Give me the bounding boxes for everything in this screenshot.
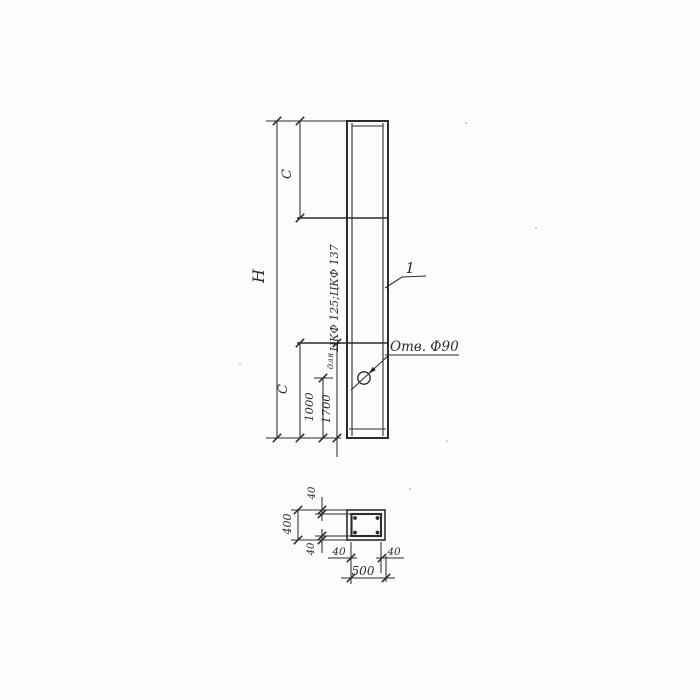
dim-label-1700: 1700 [319, 394, 333, 423]
joint-lines [297, 218, 388, 343]
post-outline [347, 121, 388, 438]
rebar-dot [353, 531, 357, 535]
hole-callout: Отв. Ф90 [351, 339, 459, 390]
note-series: ЦКФ 125;ЦКФ 137 [328, 244, 341, 351]
section-bottom-dimensions: 40 40 500 [328, 542, 404, 584]
dim-label-H: H [249, 268, 268, 284]
dim-label-cover-top: 40 [307, 486, 318, 500]
dim-label-C-bottom: C [276, 384, 291, 394]
dim-label-500: 500 [352, 564, 375, 578]
note-prefix: для [326, 352, 336, 369]
rebar-dot [376, 516, 380, 520]
elevation-view: H C C 1000 1700 для ЦКФ 125;ЦКФ 137 Отв.… [249, 117, 459, 457]
rebar-dot [376, 531, 380, 535]
dim-label-cover-bottom: 40 [306, 542, 317, 556]
rebar-dot [353, 516, 357, 520]
section-outline [347, 510, 385, 540]
drawing-sheet: H C C 1000 1700 для ЦКФ 125;ЦКФ 137 Отв.… [0, 0, 700, 700]
item-mark: 1 [385, 259, 426, 288]
dim-label-C-top: C [280, 169, 295, 179]
item-mark-leader [385, 276, 426, 288]
hole-callout-text: Отв. Ф90 [390, 339, 459, 355]
dim-label-1000: 1000 [302, 392, 316, 421]
dim-label-cover-right: 40 [386, 546, 401, 558]
section-view: 400 40 40 40 40 500 [281, 486, 404, 584]
technical-drawing-canvas: H C C 1000 1700 для ЦКФ 125;ЦКФ 137 Отв.… [0, 0, 700, 700]
dim-label-400: 400 [281, 514, 294, 536]
item-mark-number: 1 [405, 259, 415, 277]
dim-label-cover-left: 40 [331, 546, 346, 558]
